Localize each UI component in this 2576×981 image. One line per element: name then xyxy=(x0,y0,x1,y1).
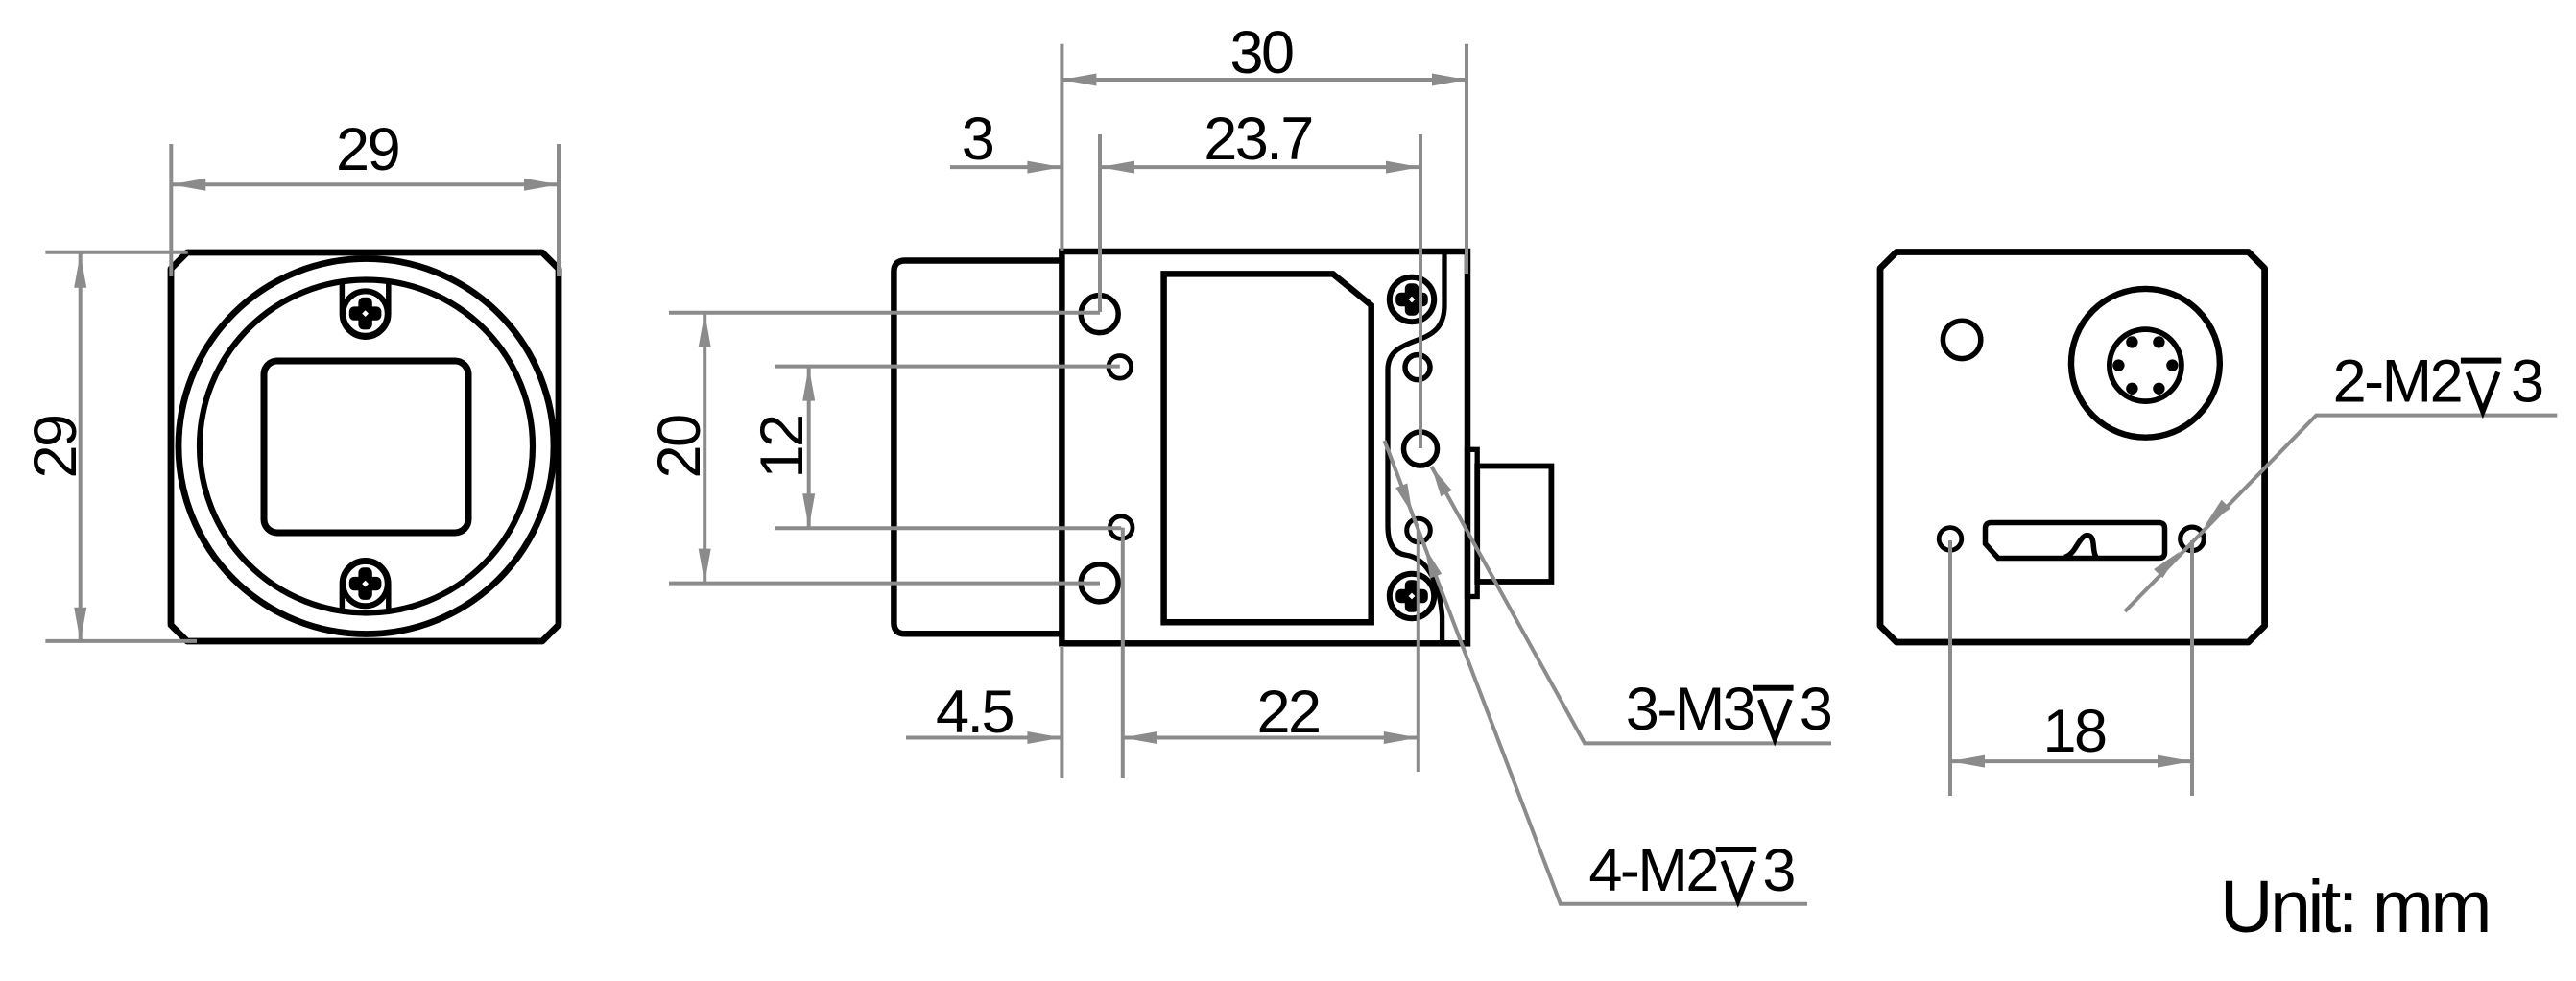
svg-text:4-M2: 4-M2 xyxy=(1588,837,1717,904)
svg-text:18: 18 xyxy=(2042,698,2106,765)
svg-text:29: 29 xyxy=(336,116,399,183)
svg-text:3: 3 xyxy=(1800,676,1831,743)
svg-text:20: 20 xyxy=(646,416,713,479)
svg-text:3: 3 xyxy=(962,106,993,173)
svg-text:29: 29 xyxy=(22,416,89,479)
svg-text:3-M3: 3-M3 xyxy=(1626,676,1754,743)
svg-text:2-M2: 2-M2 xyxy=(2333,348,2462,416)
svg-text:3: 3 xyxy=(1762,837,1794,904)
svg-text:3: 3 xyxy=(2511,348,2542,416)
svg-text:Unit: mm: Unit: mm xyxy=(2220,866,2489,948)
svg-text:23.7: 23.7 xyxy=(1204,106,1312,173)
svg-text:30: 30 xyxy=(1229,19,1293,86)
svg-text:22: 22 xyxy=(1256,679,1319,746)
svg-text:12: 12 xyxy=(749,416,816,478)
svg-text:4.5: 4.5 xyxy=(936,679,1014,746)
